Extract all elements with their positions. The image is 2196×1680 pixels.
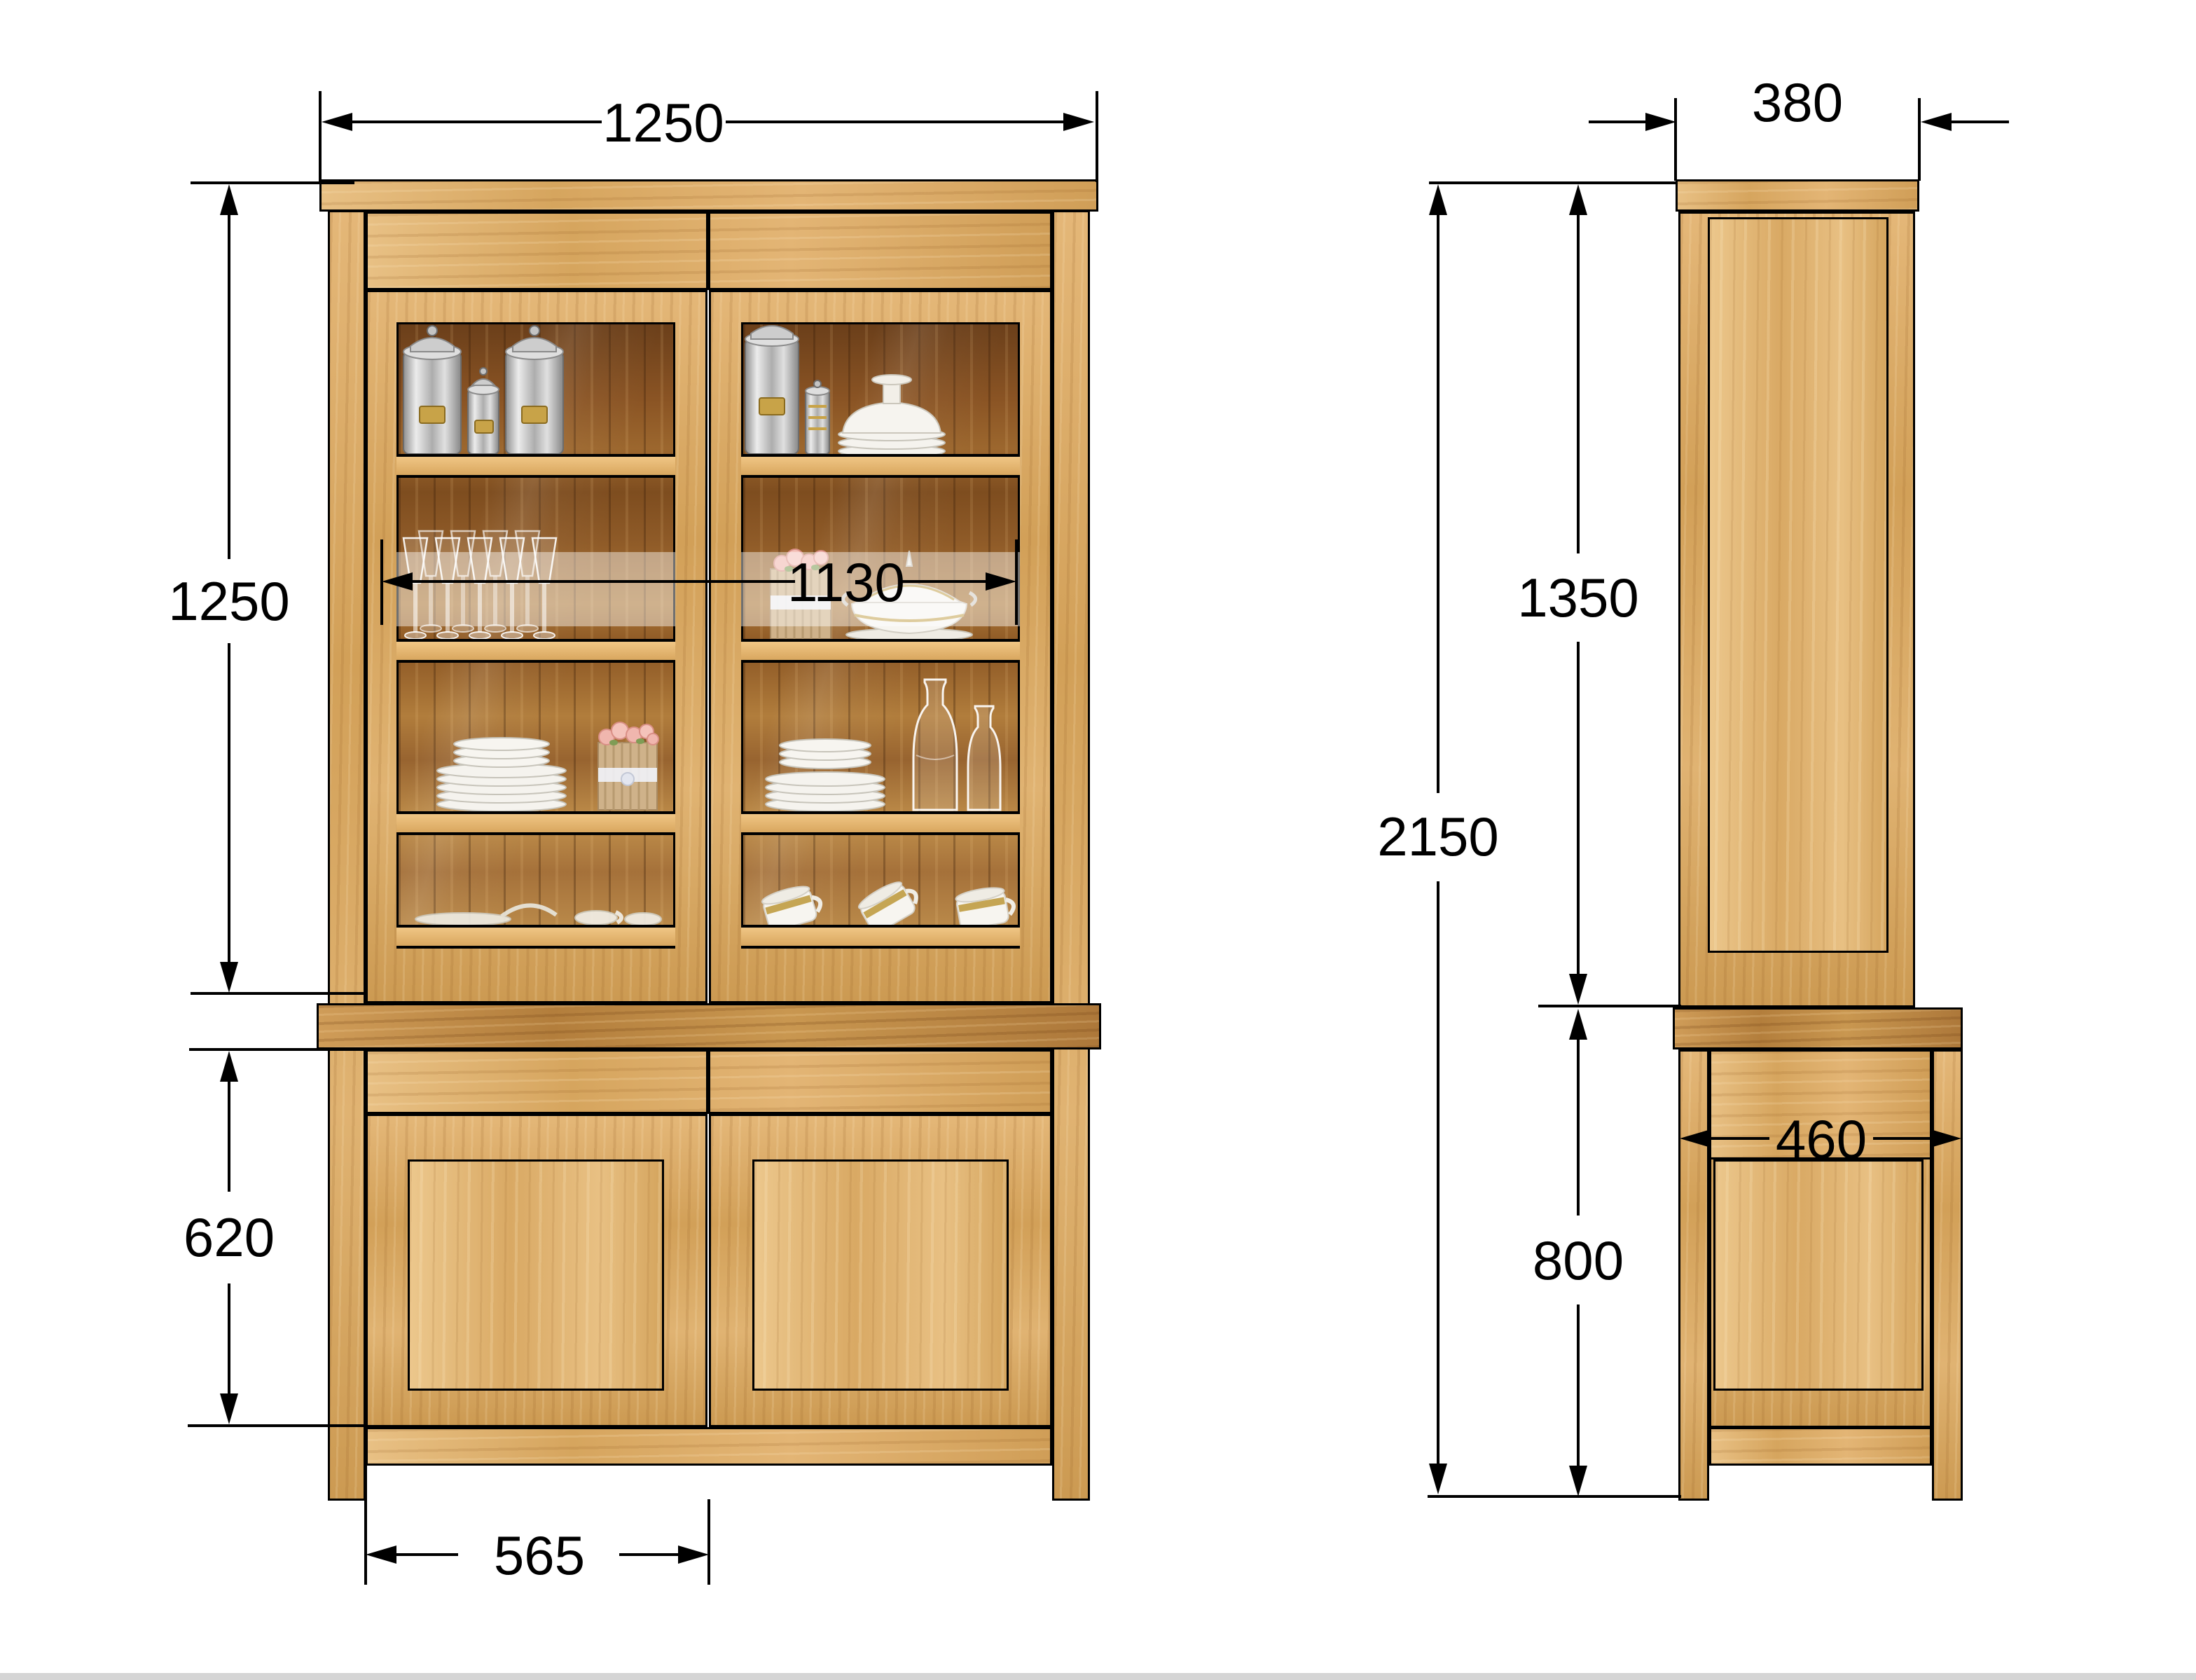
dim-door-width-label: 565 [494,1528,585,1583]
side-leg-left [1678,1049,1709,1501]
dimension-line [1873,1137,1932,1140]
arrow-up-icon [1569,1009,1587,1040]
dimension-line [1577,214,1580,553]
arrow-left-icon [1680,1129,1711,1148]
left-display-items [396,322,675,949]
arrow-left-icon [322,113,352,131]
side-upper-panel [1708,217,1888,953]
dimension-line [1437,214,1439,793]
arrow-up-icon [1569,184,1587,215]
dim-upper-section-height-label: 1350 [1517,570,1639,625]
front-upper-frieze-split [706,212,710,290]
shelf-left-3 [396,811,675,835]
arrow-right-icon [1645,113,1676,131]
arrow-right-icon [1931,1129,1961,1148]
side-lower-panel [1713,1159,1924,1391]
gold-cup-3 [955,884,1016,930]
extension-line [1674,98,1677,181]
extension-line [707,1499,710,1585]
dim-overall-width-label: 1250 [602,95,724,150]
dimension-line [228,643,230,964]
dim-lower-height-label: 620 [184,1210,275,1265]
extension-line [1428,1495,1681,1498]
dimension-line [1709,1137,1769,1140]
canister-small-right [806,380,829,454]
glass-carafe-large [913,680,957,810]
canister-large-1 [403,326,461,454]
dim-lower-section-height-label: 800 [1533,1233,1624,1288]
dimension-line [351,121,602,123]
dimension-line [228,214,230,559]
arrow-right-icon [678,1545,709,1564]
dimension-line [726,121,1066,123]
arrow-up-icon [220,1051,238,1082]
extension-line [188,1424,364,1427]
canister-small [468,368,499,454]
shelf-left-floor [396,925,675,949]
scattered-dishes-left [415,905,661,925]
extension-line [1538,1005,1681,1007]
bowl-stack-right [838,375,945,457]
side-leg-right [1932,1049,1963,1501]
canister-large-2 [506,326,563,454]
shelf-right-3 [741,811,1020,835]
canister-large-right [745,322,799,454]
glass-highlight-band-left [396,552,675,626]
arrow-down-icon [1569,1466,1587,1496]
front-lower-frieze-split [706,1049,710,1114]
shelf-right-1 [741,454,1020,478]
dimension-line [1577,1304,1580,1467]
arrow-up-icon [220,184,238,215]
plate-stack-left [437,738,566,811]
extension-line [319,91,322,182]
side-counter-board [1673,1007,1963,1049]
extension-line [1918,98,1921,181]
extension-line [189,1048,364,1051]
dim-upper-depth-label: 380 [1752,75,1843,130]
side-top-board [1676,179,1919,212]
extension-line [1096,91,1098,182]
dimension-line [1577,1038,1580,1216]
arrow-down-icon [1429,1464,1447,1494]
dimension-line [1950,121,2009,123]
shelf-left-1 [396,454,675,478]
dimension-line [228,1081,230,1192]
right-display-items [741,322,1020,949]
shelf-right-2 [741,639,1020,663]
dim-total-height-label: 2150 [1377,809,1499,864]
arrow-left-icon [382,572,413,591]
shelf-right-floor [741,925,1020,949]
arrow-down-icon [1569,974,1587,1005]
dimension-line [619,1553,679,1556]
dim-lower-depth-label: 460 [1776,1112,1867,1166]
glass-carafe-small [968,706,1000,810]
arrow-left-icon [1921,113,1952,131]
arrow-down-icon [220,1393,238,1424]
page-bottom-strip [0,1673,2196,1680]
dimension-line [900,580,987,583]
arrow-right-icon [986,572,1016,591]
dimension-line [1437,881,1439,1465]
arrow-left-icon [366,1545,396,1564]
arrow-down-icon [220,962,238,993]
arrow-up-icon [1429,184,1447,215]
dimension-line [228,1283,230,1396]
side-view: 380 1350 2150 460 800 [0,0,2196,1680]
dimension-line [411,580,795,583]
rose-box-left [598,722,658,810]
dimension-line [395,1553,458,1556]
dim-upper-height-label: 1250 [168,574,290,628]
dim-glass-interior-width-label: 1130 [787,555,905,610]
dimension-line [1589,121,1648,123]
extension-line [1429,181,1676,184]
shelf-left-2 [396,639,675,663]
extension-line [191,181,354,184]
extension-line [191,992,366,995]
plate-stack-right [766,739,885,811]
side-plinth [1709,1427,1932,1466]
arrow-right-icon [1063,113,1094,131]
dimension-line [1577,642,1580,975]
